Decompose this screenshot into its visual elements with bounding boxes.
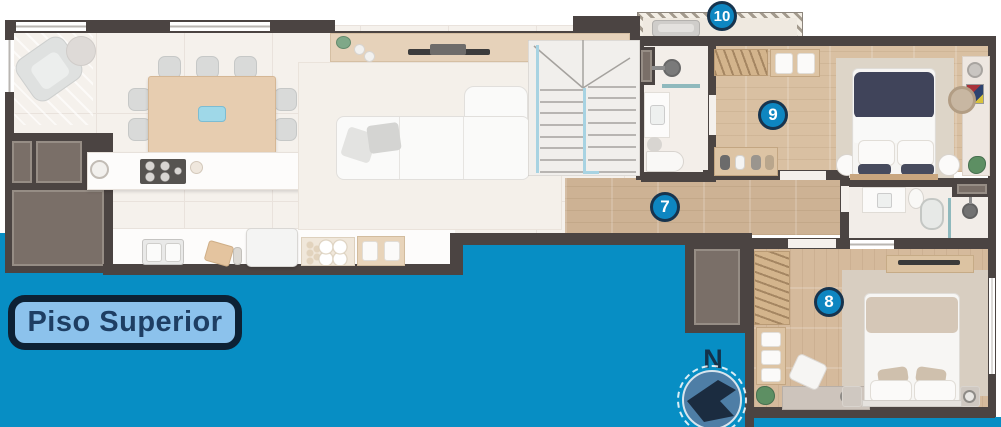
ac-unit-vent [658, 24, 694, 32]
kitchen-cabinet [357, 236, 405, 266]
plate-decor [364, 51, 375, 62]
floor-plan: 7 8 9 10 N Piso Superior [0, 0, 1001, 427]
nightstand-9-right [938, 154, 960, 176]
bath2-vanity [862, 187, 906, 213]
dresser-item [761, 368, 781, 382]
armchair-seat [29, 50, 71, 91]
bath1-shelf [662, 84, 700, 88]
dining-chair [274, 88, 297, 111]
washing-machine [246, 228, 298, 267]
tv-console [430, 44, 466, 55]
compass [682, 370, 742, 427]
shower-head-1 [663, 59, 681, 77]
shower-arm-1 [652, 66, 665, 70]
staircase [528, 40, 640, 176]
bath2-sink [877, 193, 892, 208]
bed-8-pillow [914, 380, 956, 402]
void-strip-bottom [745, 417, 1001, 427]
utility-shaft-mid [36, 141, 82, 183]
dresser-9 [770, 49, 820, 77]
bath2-tub [920, 198, 944, 230]
shower-head-2 [962, 203, 978, 219]
window-left [5, 40, 14, 92]
door-bedroom8 [788, 239, 836, 248]
bed-9-pillow [897, 140, 934, 166]
dish-rack [301, 237, 355, 266]
plate-decor [354, 44, 365, 55]
shoes [765, 155, 774, 170]
bath2-niche-inner [957, 184, 987, 194]
room-marker-7: 7 [650, 192, 680, 222]
hallway-floor [565, 178, 850, 235]
shaft-inner [694, 249, 740, 325]
room-marker-10: 10 [707, 1, 737, 31]
kitchen-sink-double [142, 239, 184, 265]
room-marker-8: 8 [814, 287, 844, 317]
cabinet-item [384, 241, 400, 261]
plant-8 [756, 386, 775, 405]
dresser-item [775, 53, 793, 74]
desk-9-monitor [967, 62, 983, 78]
bath1-sink [650, 105, 665, 125]
utility-shaft-large [12, 190, 104, 266]
shoes [751, 155, 761, 170]
wall-stairs-top [573, 16, 640, 32]
cooktop [140, 159, 186, 184]
room-marker-10-label: 10 [714, 8, 731, 25]
island-bowl [190, 161, 203, 174]
sink-basin [165, 243, 181, 262]
toilet-1 [646, 151, 684, 172]
utility-shaft-small [12, 141, 32, 183]
nightstand-8-left [842, 386, 862, 407]
bed-9-pillow [858, 140, 895, 166]
cabinet-item [362, 241, 378, 261]
room-marker-8-label: 8 [824, 292, 833, 312]
window-room8-top [850, 240, 894, 249]
window-room8-right [989, 278, 995, 374]
dresser-item [761, 332, 781, 347]
bed-9-headboard [850, 174, 938, 180]
window-top-2 [170, 22, 270, 31]
wall-top-right [633, 36, 995, 46]
room-marker-7-label: 7 [660, 197, 669, 217]
shoe-rack-9 [714, 147, 778, 176]
shoes [735, 155, 745, 170]
bath1-mat [647, 137, 662, 152]
window-top-1 [16, 22, 86, 31]
door-bathroom2 [841, 186, 849, 212]
round-rug [66, 36, 96, 66]
bed-9-duvet [854, 72, 934, 119]
bath2-glass [948, 198, 951, 238]
tv-8 [898, 260, 960, 265]
shoes [720, 155, 730, 170]
bath1-vanity [644, 92, 670, 138]
sink-basin [146, 243, 162, 262]
bottle [233, 247, 242, 265]
dresser-8 [756, 327, 786, 385]
island-sink [90, 160, 109, 179]
floor-label-text: Piso Superior [27, 306, 222, 339]
closet-rod-9 [714, 49, 768, 76]
bed-8-pillow [870, 380, 912, 402]
room-marker-9: 9 [758, 100, 788, 130]
table-centerpiece [198, 106, 226, 122]
closet-rod-8 [754, 251, 790, 325]
door-bathroom1 [709, 95, 716, 135]
plant-sideboard [336, 36, 351, 49]
sofa-cushion [366, 122, 402, 154]
dresser-item [761, 350, 781, 365]
bed-8-headboard [862, 400, 962, 407]
bath1-niche-inner [641, 50, 652, 82]
north-arrow-icon [682, 370, 742, 427]
speaker-8-right [963, 390, 976, 403]
dresser-item [797, 53, 815, 74]
door-bedroom9 [780, 171, 826, 180]
bed-8-blanket [866, 297, 958, 333]
dining-chair [274, 118, 297, 141]
chair-9 [948, 86, 976, 114]
room-marker-9-label: 9 [768, 105, 777, 125]
floor-label: Piso Superior [8, 295, 242, 350]
